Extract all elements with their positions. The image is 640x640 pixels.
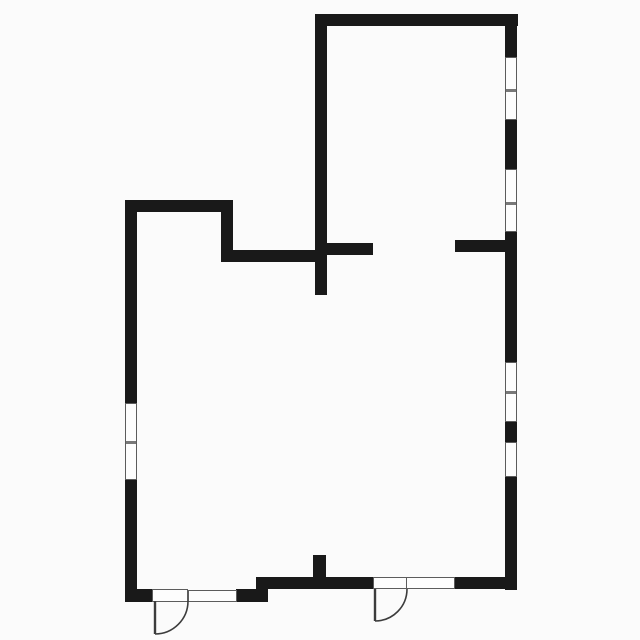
right-wall-upper-window-2 bbox=[505, 169, 517, 232]
left-entry-door-opening bbox=[152, 589, 188, 602]
right-wall-lower-window-1-pane-divider bbox=[506, 391, 516, 394]
bottom-center-stub bbox=[313, 555, 326, 579]
right-wall-upper-window-1-pane-divider bbox=[506, 89, 516, 92]
bottom-right-window bbox=[406, 577, 455, 589]
partition-stub-right bbox=[455, 240, 505, 252]
bottom-wall-left-a bbox=[125, 589, 152, 602]
right-entry-door-swing-arc bbox=[375, 589, 407, 621]
right-wall-upper-window-2-pane-divider bbox=[506, 202, 516, 205]
right-wall-lower-window-1 bbox=[505, 362, 517, 422]
bottom-wall-left-b bbox=[236, 589, 268, 602]
lower-room-top-wall bbox=[125, 200, 233, 212]
floor-plan-page bbox=[0, 0, 640, 640]
right-entry-door-opening bbox=[373, 577, 407, 589]
lower-room-top-connector bbox=[221, 250, 327, 262]
left-exterior-wall bbox=[125, 200, 137, 601]
floor-plan-canvas bbox=[0, 0, 640, 640]
right-wall-upper-window-1 bbox=[505, 57, 517, 120]
bottom-left-window bbox=[188, 590, 237, 602]
left-wall-window-pane-divider bbox=[126, 441, 136, 444]
bottom-wall-right-b bbox=[455, 577, 517, 589]
upper-room-top-wall bbox=[315, 14, 518, 26]
left-wall-window bbox=[125, 403, 137, 480]
left-entry-door-swing-arc bbox=[155, 601, 188, 634]
right-wall-lower-window-2 bbox=[505, 442, 517, 477]
